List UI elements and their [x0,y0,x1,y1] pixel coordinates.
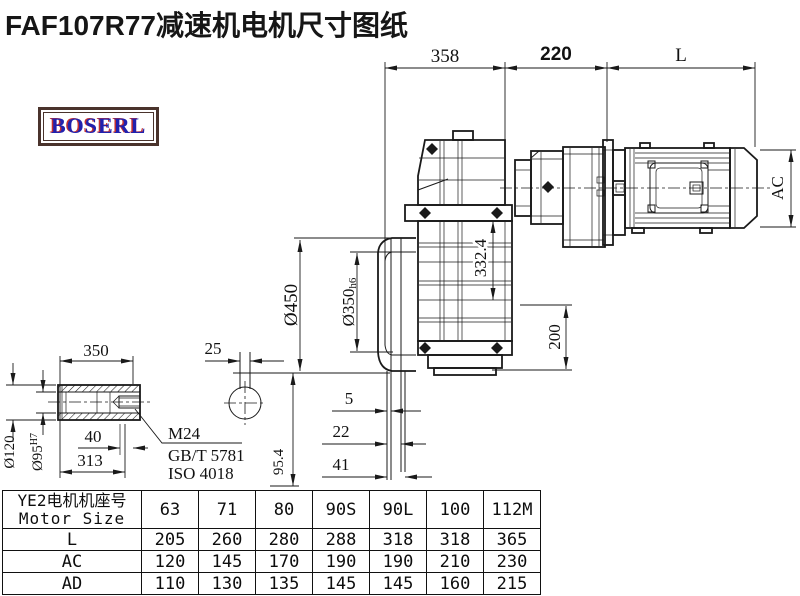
table-cell: 170 [256,551,313,573]
table-row-AD: AD 110 130 135 145 145 160 215 [3,573,541,595]
motor-size-table: YE2电机机座号 Motor Size 63 71 80 90S 90L 100… [2,490,541,595]
bolt-symbol [419,207,431,219]
panel-screw [701,161,708,168]
table-cell: 145 [370,573,427,595]
dim-spigot-label: Ø350h6 [339,277,359,326]
table-row-AC: AC 120 145 170 190 190 210 230 [3,551,541,573]
dim-95.4-label: 95.4 [271,448,287,475]
reducer-housing [405,131,512,375]
dim-200-label: 200 [545,324,564,350]
table-cell: 215 [484,573,541,595]
dim-313-label: 313 [77,451,103,470]
bolt-symbol [491,342,503,354]
table-cell: 135 [256,573,313,595]
dim-22-label: 22 [333,422,350,441]
dim-220-label: 220 [540,44,572,65]
bolt-symbol [491,207,503,219]
table-cell: 210 [427,551,484,573]
dim-flange-od-label: Ø450 [281,284,302,326]
table-cell: 318 [370,529,427,551]
table-cell: 230 [484,551,541,573]
main-view-dimensions: 358 220 L AC Ø450 Ø350h6 [281,44,796,477]
standard-gbt-label: GB/T 5781 [168,446,245,465]
row-label: AC [3,551,142,573]
table-cell: 80 [256,491,313,529]
row-label: AD [3,573,142,595]
table-header-row: YE2电机机座号 Motor Size 63 71 80 90S 90L 100… [3,491,541,529]
table-cell: 112M [484,491,541,529]
dim-40-label: 40 [85,427,102,446]
shaft-detail-dimensions: 350 Ø120 Ø95H7 40 [2,341,245,483]
table-header-cn: YE2电机机座号 [3,492,141,510]
table-cell: 145 [199,551,256,573]
dim-L-label: L [675,45,687,66]
dim-25-label: 25 [205,339,222,358]
table-cell: 190 [370,551,427,573]
drawing-sheet: FAF107R77减速机电机尺寸图纸 BOSERL [0,0,800,596]
dim-350-label: 350 [83,341,109,360]
table-cell: 120 [142,551,199,573]
thread-spec-label: M24 [168,424,201,443]
table-header-title: YE2电机机座号 Motor Size [3,491,142,529]
dim-bore-label: Ø95H7 [29,433,46,471]
bolt-symbol [419,342,431,354]
table-cell: 63 [142,491,199,529]
table-cell: 318 [427,529,484,551]
table-row-L: L 205 260 280 288 318 318 365 [3,529,541,551]
table-cell: 90L [370,491,427,529]
dim-AC-label: AC [768,176,787,200]
table-cell: 288 [313,529,370,551]
table-cell: 160 [427,573,484,595]
motor [603,140,757,245]
dim-332.4-label: 332.4 [471,238,490,277]
shaft-detail: 350 Ø120 Ø95H7 40 [2,341,245,483]
dim-41-label: 41 [333,455,350,474]
main-view: 358 220 L AC Ø450 Ø350h6 [281,44,796,480]
table-cell: 100 [427,491,484,529]
table-cell: 110 [142,573,199,595]
dim-hub-od-label: Ø120 [2,435,18,468]
table-cell: 71 [199,491,256,529]
bolt-symbol [542,181,554,193]
table-header-en: Motor Size [3,510,141,527]
table-cell: 145 [313,573,370,595]
input-stage [515,147,605,247]
bolt-symbol [426,143,438,155]
table-cell: 260 [199,529,256,551]
table-cell: 205 [142,529,199,551]
table-cell: 190 [313,551,370,573]
table-cell: 90S [313,491,370,529]
dim-358-label: 358 [431,46,460,67]
dim-5-label: 5 [345,389,354,408]
standard-iso-label: ISO 4018 [168,464,234,483]
table-cell: 130 [199,573,256,595]
table-cell: 365 [484,529,541,551]
row-label: L [3,529,142,551]
table-cell: 280 [256,529,313,551]
